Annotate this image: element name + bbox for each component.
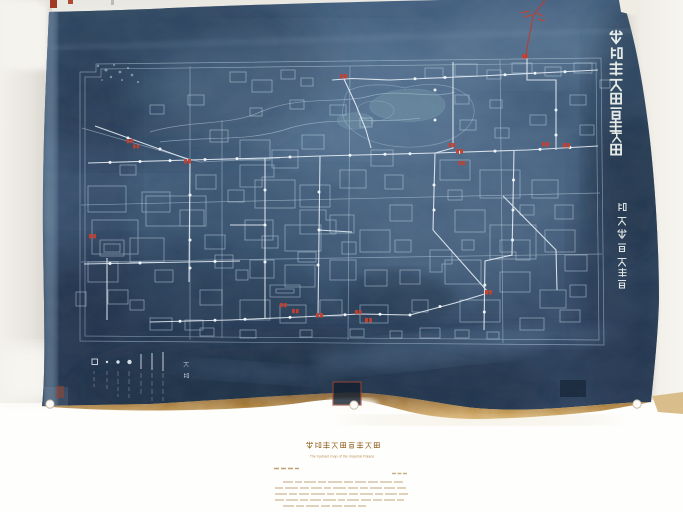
svg-text:The hydrant map of the Imperia: The hydrant map of the Imperial Palace xyxy=(310,455,375,459)
